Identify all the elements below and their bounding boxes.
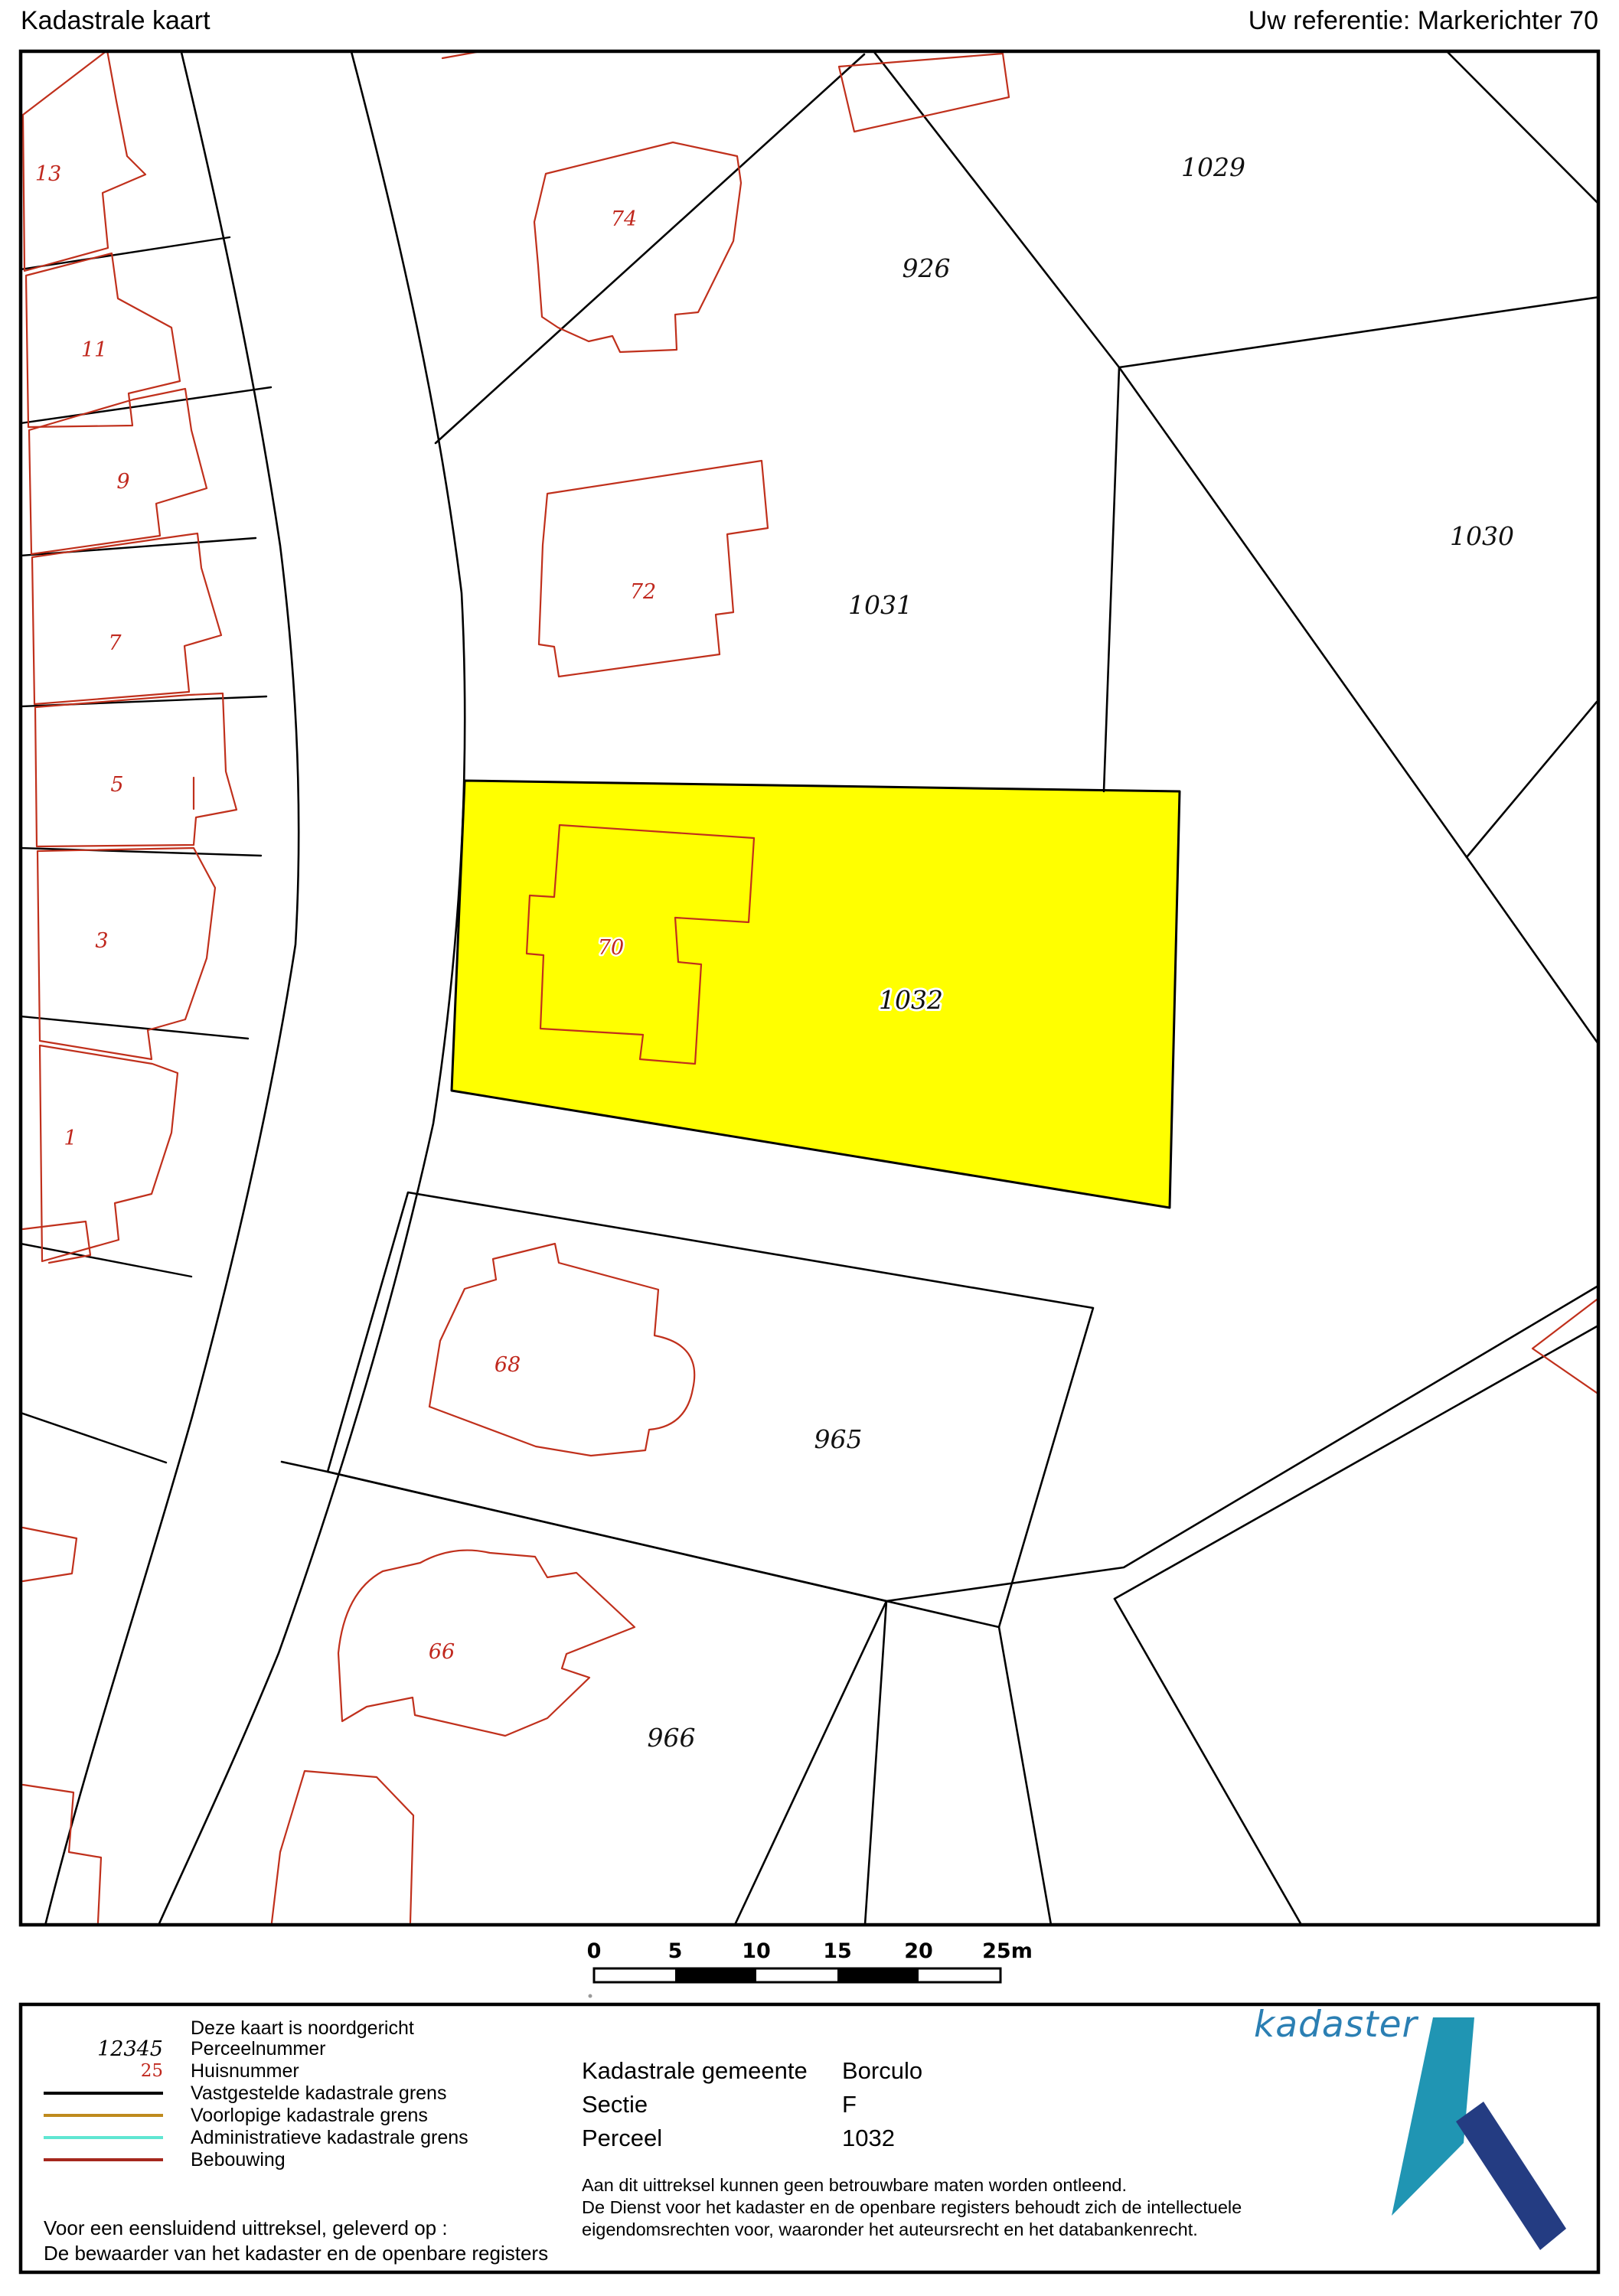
parcel-label-926: 926 [903, 253, 951, 283]
parcel-965-boundary [328, 1192, 1093, 1627]
scale-label-20: 20 [904, 1939, 933, 1963]
building-74-outline [534, 142, 741, 352]
south-parcel-boundaries [282, 1192, 1598, 1925]
footer-line-1: Voor een eensluidend uittreksel, gelever… [44, 2216, 448, 2240]
legend-row-provisional-boundary: Voorlopige kadastrale grens [44, 2105, 428, 2126]
parcel-label-1030: 1030 [1450, 521, 1514, 551]
scale-segment-black-1 [675, 1968, 756, 1982]
house-label-72: 72 [630, 580, 656, 604]
house-label-9: 9 [116, 470, 129, 494]
legend-row-parcelnumber: 12345 Perceelnummer [44, 2038, 325, 2060]
info-value-perceel: 1032 [842, 2125, 895, 2152]
house-5-outline [35, 693, 237, 846]
legend-label-administrative: Administratieve kadastrale grens [191, 2127, 468, 2149]
legend-row-north: Deze kaart is noordgericht [44, 2017, 414, 2039]
legend-row-administrative-boundary: Administratieve kadastrale grens [44, 2127, 468, 2148]
legend-sample-housenumber: 25 [141, 2061, 163, 2081]
stray-dot [589, 1994, 592, 1998]
scale-label-10: 10 [742, 1939, 771, 1963]
legend-label-provisional: Voorlopige kadastrale grens [191, 2105, 428, 2127]
parcel-label-966: 966 [648, 1723, 696, 1753]
scale-bar-outline [594, 1968, 1000, 1982]
legend-row-housenumber: 25 Huisnummer [44, 2060, 299, 2082]
house-7-outline [32, 533, 221, 704]
house-label-1: 1 [64, 1127, 77, 1150]
info-value-sectie: F [842, 2091, 857, 2118]
kadaster-logo-mark [1392, 2017, 1566, 2250]
legend-label-north: Deze kaart is noordgericht [191, 2017, 414, 2040]
house-label-3: 3 [95, 929, 108, 953]
footer-line-2: De bewaarder van het kadaster en de open… [44, 2242, 548, 2265]
note-line-2: De Dienst voor het kadaster en de openba… [582, 2197, 1242, 2218]
house-label-74: 74 [611, 207, 637, 231]
info-label-perceel: Perceel [582, 2125, 662, 2152]
legend-label-parcelnumber: Perceelnummer [191, 2038, 325, 2060]
logo-stroke-shape [1456, 2102, 1566, 2250]
building-68-outline [429, 1244, 694, 1456]
scale-label-0: 0 [587, 1939, 602, 1963]
legend-row-building: Bebouwing [44, 2149, 286, 2170]
house-label-68: 68 [495, 1353, 521, 1377]
building-partial-corner [23, 1785, 101, 1923]
legend-row-established-boundary: Vastgestelde kadastrale grens [44, 2082, 446, 2104]
building-66-outline [338, 1551, 635, 1736]
legend-sample-parcelnumber: 12345 [97, 2037, 163, 2061]
note-line-3: eigendomsrechten voor, waaronder het aut… [582, 2219, 1198, 2240]
building-72-outline [539, 461, 768, 677]
house-label-13: 13 [35, 162, 61, 186]
road-outer-curve [157, 46, 465, 1929]
building-partial-left-2 [23, 1528, 77, 1581]
road-strip-upper [886, 1286, 1598, 1601]
house-13-outline [23, 51, 145, 271]
house-label-66: 66 [429, 1640, 455, 1664]
parcel-1032-highlight [452, 781, 1180, 1208]
parcel-label-1031: 1031 [848, 590, 912, 620]
building-partial-right [1533, 1300, 1597, 1393]
logo-blade-shape [1392, 2017, 1474, 2216]
road-strip-lower [1115, 1326, 1598, 1599]
info-label-gemeente: Kadastrale gemeente [582, 2057, 808, 2085]
building-partial-bottom [272, 1771, 413, 1923]
building-top-partial [839, 54, 1009, 132]
house-label-5: 5 [110, 773, 123, 797]
legend-line-established [44, 2092, 163, 2095]
info-value-gemeente: Borculo [842, 2057, 922, 2085]
legend-label-building: Bebouwing [191, 2149, 286, 2171]
cadastral-map-page: Kadastrale kaart Uw referentie: Markeric… [0, 0, 1619, 2296]
house-label-7: 7 [108, 631, 122, 655]
house-label-70: 70 [598, 936, 624, 960]
legend-label-housenumber: Huisnummer [191, 2060, 299, 2082]
map-svg: 1029 926 1031 1030 1032 965 966 74 72 70… [0, 0, 1619, 2296]
parcel-label-1029: 1029 [1181, 152, 1245, 182]
legend-line-building [44, 2158, 163, 2161]
house-label-11: 11 [81, 338, 107, 362]
scale-label-25m: 25m [982, 1939, 1033, 1963]
info-label-sectie: Sectie [582, 2091, 648, 2118]
scale-bar: 0 5 10 15 20 25m [587, 1939, 1033, 1982]
kadaster-logo-text: kadaster [1254, 2004, 1418, 2046]
parcel-label-965: 965 [814, 1424, 863, 1454]
house-1-outline [40, 1045, 178, 1261]
legend-line-provisional [44, 2114, 163, 2117]
legend-line-administrative [44, 2136, 163, 2139]
scale-label-5: 5 [668, 1939, 683, 1963]
scale-label-15: 15 [823, 1939, 852, 1963]
note-line-1: Aan dit uittreksel kunnen geen betrouwba… [582, 2175, 1127, 2196]
scale-segment-black-2 [837, 1968, 919, 1982]
parcel-label-1032: 1032 [879, 985, 943, 1015]
legend-label-established: Vastgestelde kadastrale grens [191, 2082, 446, 2105]
